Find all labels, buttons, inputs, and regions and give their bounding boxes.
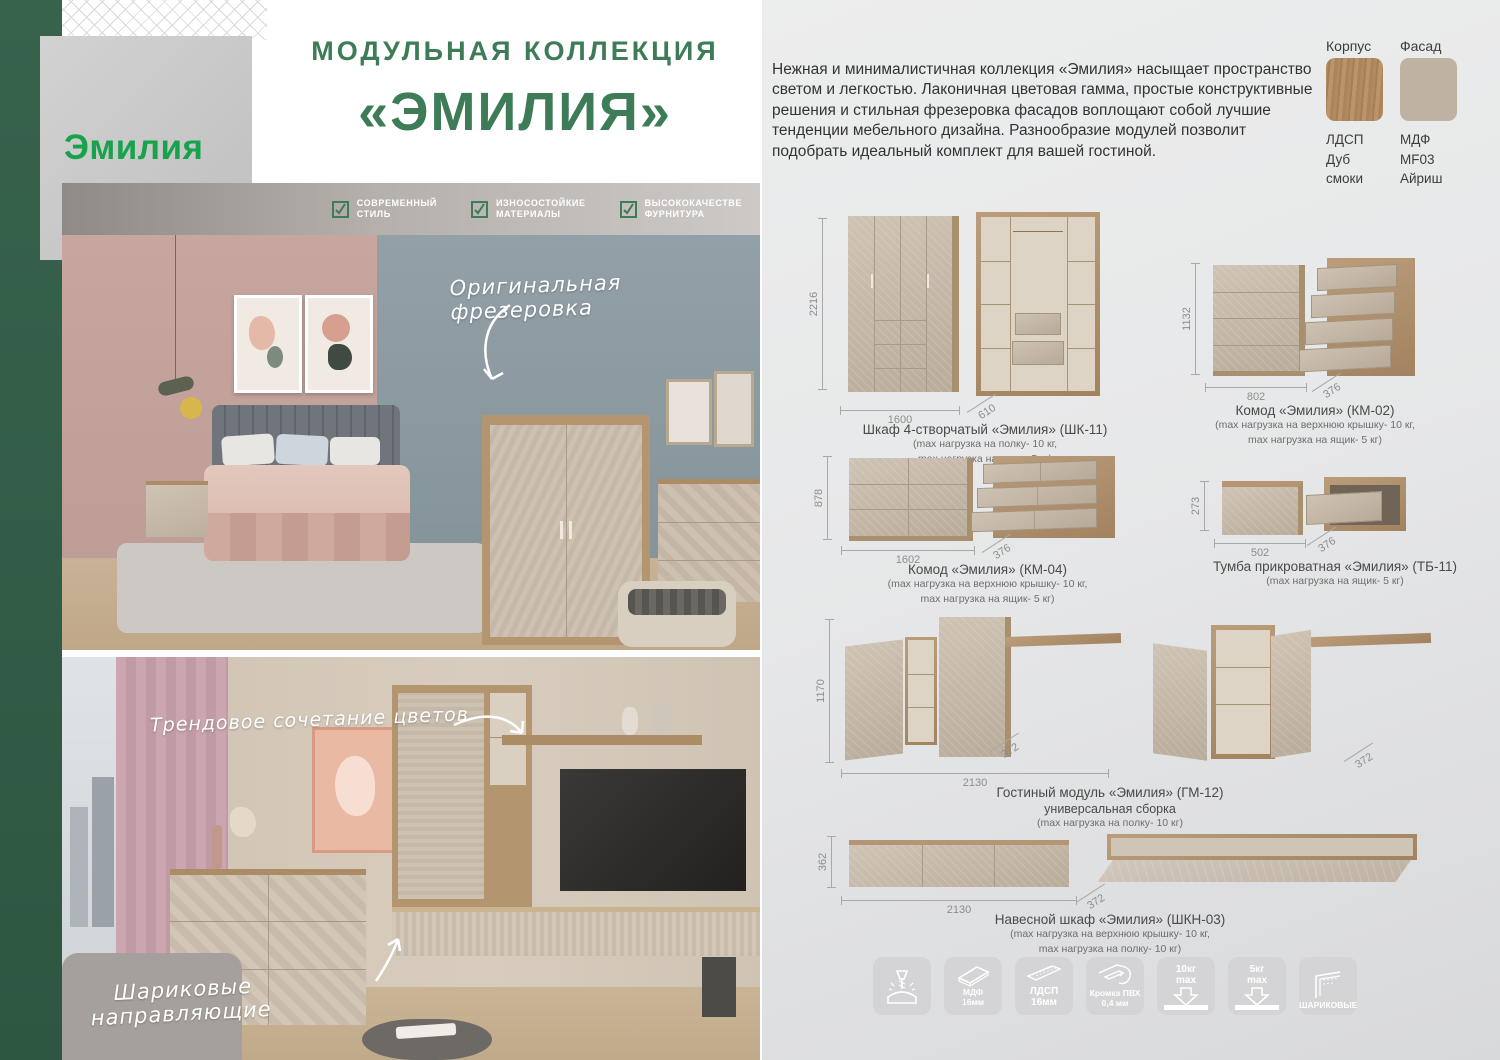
chest-open-drawing	[1327, 258, 1415, 376]
pillow	[275, 434, 328, 467]
product-caption: Комод «Эмилия» (КМ-02) (max нагрузка на …	[1165, 403, 1465, 447]
wall-art	[234, 295, 302, 393]
annotation-slides: Шариковые направляющие	[113, 973, 272, 1029]
lattice-pattern	[62, 0, 267, 40]
dim-depth: 376	[991, 542, 1013, 562]
wall-art	[305, 295, 373, 393]
feature-badge-style: СОВРЕМЕННЫЙСТИЛЬ	[332, 198, 437, 221]
page-title: МОДУЛЬНАЯ КОЛЛЕКЦИЯ «ЭМИЛИЯ»	[280, 36, 750, 143]
dim-depth: 610	[976, 402, 998, 422]
art-shape	[267, 346, 283, 368]
art-shape	[322, 314, 350, 342]
annotation-arrow	[450, 707, 530, 747]
bed-blanket-fold	[204, 513, 410, 561]
shelf-vase	[622, 707, 638, 735]
dim-height: 273	[1190, 497, 1202, 515]
module-closed-drawing	[845, 613, 1125, 763]
feature-ball-slides: ШАРИКОВЫЕ	[1299, 957, 1357, 1015]
dim-height: 362	[817, 853, 829, 871]
bedroom-photo: СОВРЕМЕННЫЙСТИЛЬ ИЗНОСОСТОЙКИЕМАТЕРИАЛЫ …	[62, 183, 760, 650]
wardrobe-open-drawing	[976, 212, 1100, 396]
catalog-panel: Нежная и минималистичная коллекция «Эмил…	[762, 0, 1500, 1060]
module-door-open	[1153, 643, 1207, 761]
wall-shelf	[502, 735, 702, 745]
title-line1: МОДУЛЬНАЯ КОЛЛЕКЦИЯ	[280, 36, 750, 67]
product-caption: Гостиный модуль «Эмилия» (ГМ-12) универс…	[875, 785, 1345, 831]
dim-height: 2216	[808, 292, 820, 316]
feature-badge-materials: ИЗНОСОСТОЙКИЕМАТЕРИАЛЫ	[471, 198, 586, 221]
pillow	[221, 433, 275, 467]
dim-height: 878	[813, 489, 825, 507]
module-cabinet	[939, 617, 1011, 757]
dim-width: 502	[1251, 547, 1269, 559]
module-shelves	[905, 637, 937, 745]
wardrobe-handle	[560, 521, 563, 539]
wardrobe-closed-drawing	[848, 216, 959, 392]
handle	[927, 274, 929, 288]
feature-icons-row: МДФ16мм ЛДСП16мм Кромка ПВХ0,4 мм 10кгma…	[873, 957, 1357, 1015]
lamp-cord	[175, 235, 176, 385]
pillow	[330, 437, 380, 465]
module-door-swung	[1271, 630, 1311, 758]
korpus-swatch	[1326, 58, 1383, 121]
module-plank	[1311, 633, 1431, 647]
pvc-edge-icon	[1097, 963, 1133, 989]
nightstand	[146, 481, 208, 537]
feature-pvc-edge: Кромка ПВХ0,4 мм	[1086, 957, 1144, 1015]
brand-logo: Эмилия	[40, 128, 203, 168]
korpus-label: Корпус	[1326, 38, 1371, 54]
city-building	[92, 777, 114, 927]
pouf-throw	[628, 589, 726, 615]
load-bar	[1164, 1005, 1208, 1010]
feature-mdf: МДФ16мм	[944, 957, 1002, 1015]
shelf-vase	[652, 701, 672, 735]
wall-art-small	[714, 371, 754, 447]
product-shk11: 2216 1600 610 Шкаф 4-ство	[810, 200, 1160, 450]
vase	[212, 825, 222, 869]
mdf-panel-icon	[955, 964, 991, 988]
module-cabinet-open	[1211, 625, 1275, 759]
wall-art-small	[666, 379, 712, 445]
korpus-desc: ЛДСПДубсмоки	[1326, 130, 1363, 189]
module-open-drawing	[1153, 613, 1433, 763]
chest-open-drawing	[993, 456, 1115, 538]
checkbox-icon	[620, 201, 637, 218]
tv-screen	[560, 769, 746, 891]
product-gm12: 1170 2130 372 372	[815, 605, 1440, 835]
media-bench	[392, 907, 760, 956]
checkbox-icon	[332, 201, 349, 218]
milling-icon	[884, 967, 920, 1005]
art-shape	[328, 344, 352, 370]
dim-width: 802	[1247, 391, 1265, 403]
livingroom-photo: Трендовое сочетание цветов Шариковые нап…	[62, 657, 760, 1060]
feature-ldsp: ЛДСП16мм	[1015, 957, 1073, 1015]
dim-height: 1132	[1181, 307, 1193, 331]
dim-depth: 372	[1085, 892, 1107, 912]
chest-closed-drawing	[1213, 265, 1305, 376]
open-book	[396, 1023, 457, 1039]
load-bar	[1235, 1005, 1279, 1010]
speaker	[702, 957, 736, 1017]
ldsp-panel-icon	[1026, 964, 1062, 986]
annotation-arrow	[470, 301, 520, 391]
poster-shape	[335, 756, 375, 816]
city-building	[70, 807, 88, 927]
wardrobe-handle	[569, 521, 572, 539]
feature-load5: 5кгmax	[1228, 957, 1286, 1015]
product-tb11: 273 502 376 Тумба прикроватная «Эмилия» …	[1190, 455, 1480, 605]
feature-milling	[873, 957, 931, 1015]
fasad-label: Фасад	[1400, 38, 1441, 54]
checkbox-icon	[471, 201, 488, 218]
feature-badges-bar: СОВРЕМЕННЫЙСТИЛЬ ИЗНОСОСТОЙКИЕМАТЕРИАЛЫ …	[62, 183, 760, 235]
dim-height: 1170	[815, 679, 827, 703]
fasad-desc: МДФMF03Айриш	[1400, 130, 1442, 189]
nightstand-open-drawing	[1324, 477, 1406, 531]
chest-closed-drawing	[849, 458, 973, 541]
feature-load10: 10кгmax	[1157, 957, 1215, 1015]
pouf	[618, 581, 736, 647]
dim-depth: 376	[1316, 535, 1338, 555]
product-km02: 1132 802 376 Комод «Эмилия» (КМ-02) (max…	[1165, 205, 1465, 450]
product-km04: 878 1602 376 Комод «Эмилия» (КМ-04) (max…	[815, 448, 1160, 613]
dim-depth: 376	[1321, 381, 1343, 401]
catalog-page: Эмилия МОДУЛЬНАЯ КОЛЛЕКЦИЯ «ЭМИЛИЯ»	[0, 0, 1500, 1060]
module-door	[845, 639, 903, 760]
shelf-open-flap	[1098, 860, 1411, 882]
art-shape	[249, 316, 275, 350]
product-caption: Комод «Эмилия» (КМ-04) (max нагрузка на …	[815, 562, 1160, 606]
shelf-open-drawing	[1107, 834, 1417, 860]
handle	[871, 274, 873, 288]
collection-description: Нежная и минималистичная коллекция «Эмил…	[772, 60, 1324, 163]
ball-slides-icon	[1310, 970, 1346, 1002]
coffee-table	[362, 1019, 492, 1060]
fasad-swatch	[1400, 58, 1457, 121]
title-line2: «ЭМИЛИЯ»	[280, 81, 750, 143]
module-plank	[1005, 633, 1121, 647]
dried-flowers	[230, 807, 256, 837]
product-caption: Тумба прикроватная «Эмилия» (ТБ-11) (max…	[1190, 559, 1480, 589]
product-caption: Навесной шкаф «Эмилия» (ШКН-03) (max наг…	[875, 912, 1345, 956]
pendant-lamp-bulb	[180, 397, 202, 419]
nightstand-closed-drawing	[1222, 481, 1303, 535]
annotation-arrow	[370, 937, 410, 983]
feature-badge-hardware: ВЫСОКОКАЧЕСТВЕФУРНИТУРА	[620, 198, 742, 221]
shelf-closed-drawing	[849, 840, 1069, 887]
